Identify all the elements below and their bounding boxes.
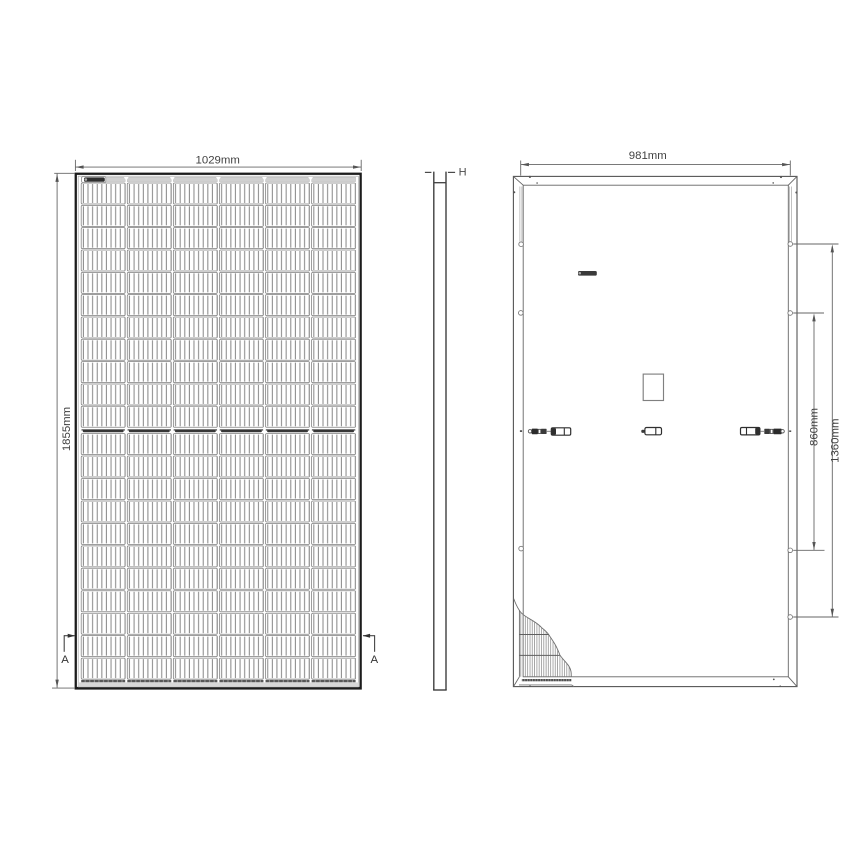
svg-text:A: A: [61, 654, 69, 666]
svg-text:1855mm: 1855mm: [61, 407, 73, 451]
svg-text:H: H: [459, 167, 467, 179]
svg-text:860mm: 860mm: [808, 408, 820, 446]
svg-text:A: A: [370, 654, 378, 666]
svg-text:1029mm: 1029mm: [196, 154, 240, 166]
svg-text:981mm: 981mm: [629, 150, 667, 162]
svg-text:1360mm: 1360mm: [830, 419, 842, 463]
